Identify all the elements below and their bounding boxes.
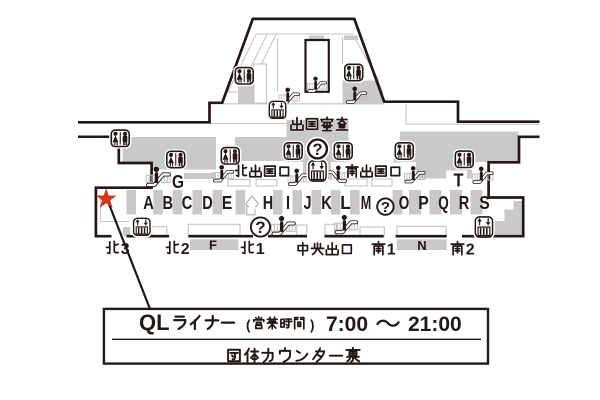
svg-text:B: B — [162, 192, 173, 213]
svg-text:A: A — [143, 192, 154, 213]
svg-text:F: F — [209, 237, 217, 252]
svg-text:1: 1 — [256, 241, 265, 258]
svg-text:J: J — [304, 192, 312, 213]
svg-text:): ) — [310, 318, 315, 333]
svg-text:S: S — [479, 192, 490, 213]
svg-text:M: M — [361, 192, 372, 213]
svg-text:21:00: 21:00 — [408, 313, 462, 336]
svg-text:H: H — [263, 192, 274, 213]
svg-text:2: 2 — [181, 241, 190, 258]
svg-text:3: 3 — [121, 241, 130, 258]
svg-text:QL: QL — [139, 310, 170, 335]
svg-text:2: 2 — [466, 242, 475, 259]
svg-text:(: ( — [246, 318, 251, 333]
svg-text:O: O — [399, 192, 410, 213]
svg-text:R: R — [459, 192, 470, 213]
svg-text:P: P — [418, 192, 429, 213]
svg-text:K: K — [321, 192, 332, 213]
svg-text:1: 1 — [387, 242, 396, 259]
svg-text:T: T — [454, 170, 465, 191]
svg-text:G: G — [172, 171, 184, 192]
svg-text:D: D — [202, 192, 213, 213]
svg-text:N: N — [417, 238, 426, 253]
svg-text:?: ? — [381, 199, 390, 216]
svg-text:7:00: 7:00 — [326, 313, 368, 336]
svg-text:L: L — [340, 192, 351, 213]
svg-text:Q: Q — [438, 192, 449, 213]
svg-text:E: E — [222, 192, 233, 213]
svg-text:?: ? — [255, 218, 265, 237]
svg-text:?: ? — [312, 141, 322, 159]
svg-text:I: I — [286, 192, 290, 213]
svg-text:C: C — [182, 192, 193, 213]
